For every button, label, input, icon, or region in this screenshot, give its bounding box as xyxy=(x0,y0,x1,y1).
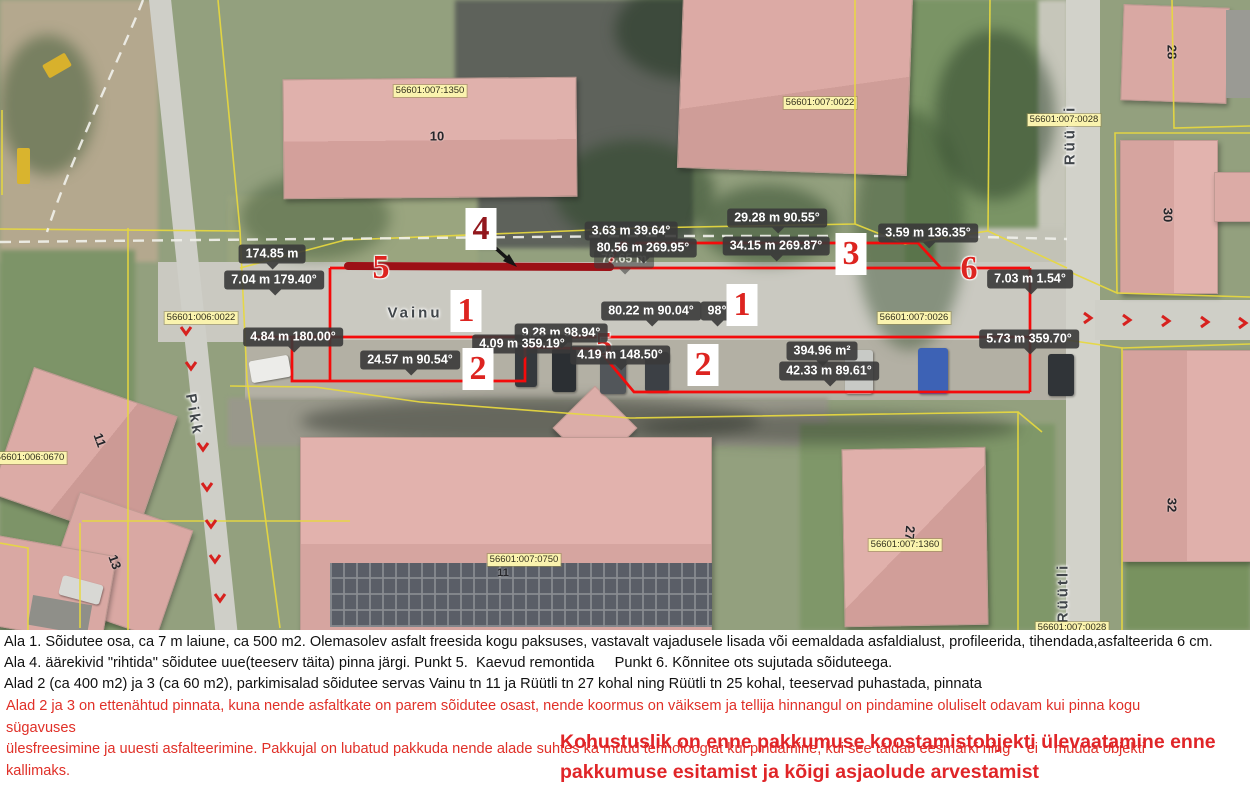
building-28-annex xyxy=(1226,10,1250,98)
building-0022 xyxy=(677,0,913,176)
tender-map-document: Vainu Pikk Rüütli Rüütli 10 28 30 32 27 … xyxy=(0,0,1250,796)
point-marker-5: 5 xyxy=(373,247,390,289)
east-road-surface xyxy=(1095,300,1250,340)
cadastral-label: 56601:007:0022 xyxy=(784,97,857,109)
point-marker-6: 6 xyxy=(961,248,978,290)
house-number-10: 10 xyxy=(430,129,444,144)
measurement-label: 80.56 m 269.95° xyxy=(590,239,697,258)
house-number-32: 32 xyxy=(1165,498,1180,512)
measurement-label: 24.57 m 90.54° xyxy=(360,351,460,370)
street-name-vainu: Vainu xyxy=(387,305,442,322)
measurement-label: 5.73 m 359.70° xyxy=(979,330,1079,349)
house-number-30: 30 xyxy=(1161,208,1176,222)
measurement-label: 4.84 m 180.00° xyxy=(243,328,343,347)
building-30-annex xyxy=(1214,172,1250,222)
house-number-11-vainu: 11 xyxy=(497,567,509,579)
measurement-label: 7.03 m 1.54° xyxy=(987,270,1073,289)
measurement-label: 3.59 m 136.35° xyxy=(878,224,978,243)
tree xyxy=(0,35,95,175)
aerial-map: Vainu Pikk Rüütli Rüütli 10 28 30 32 27 … xyxy=(0,0,1250,630)
grass-east xyxy=(1125,556,1250,630)
excavator xyxy=(17,148,30,184)
area-marker-2: 2 xyxy=(463,348,494,390)
cadastral-label: 56601:007:0028 xyxy=(1036,622,1109,630)
measurement-label: 4.19 m 148.50° xyxy=(570,346,670,365)
cadastral-label: 56601:006:0670 xyxy=(0,452,66,464)
cadastral-label: 56601:006:0022 xyxy=(165,312,238,324)
parked-car xyxy=(1048,354,1074,396)
area-marker-2b: 2 xyxy=(688,344,719,386)
area-marker-1: 1 xyxy=(451,290,482,332)
cadastral-label: 56601:007:1350 xyxy=(394,85,467,97)
point-marker-4: 4 xyxy=(466,208,497,250)
area-marker-3: 3 xyxy=(836,233,867,275)
measurement-label: 42.33 m 89.61° xyxy=(779,362,879,381)
measurement-label: 7.04 m 179.40° xyxy=(224,271,324,290)
measurement-label: 80.22 m 90.04° xyxy=(601,302,701,321)
measurement-label: 29.28 m 90.55° xyxy=(727,209,827,228)
cadastral-label: 56601:007:0028 xyxy=(1028,114,1101,126)
building-32 xyxy=(1122,350,1250,562)
measurement-label: 34.15 m 269.87° xyxy=(723,237,830,256)
note-alad-2-3: Alad 2 (ca 400 m2) ja 3 (ca 60 m2), park… xyxy=(4,674,982,694)
measurement-label: 174.85 m xyxy=(239,245,306,264)
cadastral-label: 56601:007:0750 xyxy=(488,554,561,566)
note-ala-1: Ala 1. Sõidutee osa, ca 7 m laiune, ca 5… xyxy=(4,632,1213,652)
area-marker-1b: 1 xyxy=(727,284,758,326)
measurement-label-area: 394.96 m² xyxy=(787,342,858,361)
cadastral-label: 56601:007:1360 xyxy=(869,539,942,551)
house-number-28: 28 xyxy=(1165,45,1180,59)
cadastral-label: 56601:007:0026 xyxy=(878,312,951,324)
street-name-ruutli-south: Rüütli xyxy=(1055,563,1072,624)
parked-car-blue xyxy=(918,348,948,394)
note-ala-4: Ala 4. äärekivid "rihtida" sõidutee uue(… xyxy=(4,653,892,673)
solar-panels xyxy=(330,563,712,627)
note-warning-bold: Kohustuslik on enne pakkumuse koostamist… xyxy=(560,727,1220,787)
